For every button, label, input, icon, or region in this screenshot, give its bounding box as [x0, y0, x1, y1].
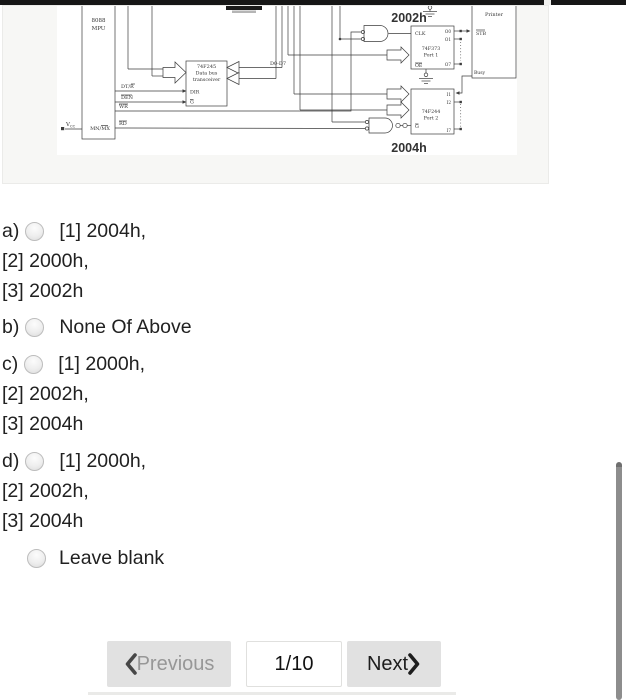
option-d-line-3: [3] 2004h — [2, 506, 83, 536]
dt-r-label: DT/R — [121, 84, 134, 90]
busy-line — [460, 76, 473, 93]
rd-line — [115, 128, 365, 129]
chevron-right-icon — [408, 653, 421, 675]
data-bus-label: D0-D7 — [270, 61, 286, 67]
o7-label: O7 — [445, 62, 451, 67]
option-c-line-2: [2] 2002h, — [2, 379, 89, 409]
option-label-c[interactable]: [1] 2000h, — [58, 349, 145, 379]
radio-leave-blank[interactable] — [27, 549, 46, 568]
page-indicator: 1/10 — [246, 641, 342, 687]
previous-button-label: Previous — [137, 653, 215, 676]
i7-label: I7 — [447, 128, 452, 133]
leave-blank-row: Leave blank — [2, 543, 164, 573]
option-key-a: a) — [2, 216, 19, 246]
circuit-figure: 8088 MPU MN/MX VCC DT/R DEN WR RD 74F245… — [57, 6, 517, 155]
option-c-line-3: [3] 2004h — [2, 409, 83, 439]
question-figure-panel: 8088 MPU MN/MX VCC DT/R DEN WR RD 74F245… — [2, 5, 549, 184]
bus-arrow-into-port2-b — [387, 102, 409, 118]
nand-gate-top — [364, 26, 388, 42]
rd-label: RD — [119, 121, 127, 127]
ground-symbol-oe — [419, 69, 433, 84]
port2-label-1: 74F244 — [422, 109, 441, 115]
busy-label: Busy — [474, 70, 486, 76]
bus-arrow-into-port1 — [387, 47, 409, 63]
mpu-label-2: MPU — [92, 26, 106, 32]
vcc-label: VCC — [65, 122, 76, 129]
den-label: DEN — [121, 95, 134, 101]
circuit-diagram: 8088 MPU MN/MX VCC DT/R DEN WR RD 74F245… — [57, 6, 517, 155]
next-button[interactable]: Next — [347, 641, 441, 687]
option-a-line-3: [3] 2002h — [2, 276, 83, 306]
port1-label-1: 74F373 — [422, 46, 441, 52]
radio-option-c[interactable] — [24, 355, 43, 374]
nav-shadow — [88, 692, 456, 695]
g-transceiver-label: G — [190, 100, 194, 106]
option-label-a[interactable]: [1] 2004h, — [59, 216, 146, 246]
option-label-b[interactable]: None Of Above — [59, 312, 191, 342]
nand-gate-bottom — [369, 118, 393, 133]
port2-label-2: Port 2 — [424, 116, 439, 122]
transceiver-label-2: Data bus — [196, 71, 218, 77]
oe-label: OE — [415, 63, 423, 69]
page-indicator-value: 1/10 — [275, 653, 314, 676]
o0-label: O0 — [445, 29, 451, 34]
mpu-label-1: 8088 — [92, 18, 106, 24]
radio-option-b[interactable] — [25, 318, 44, 337]
i2-label: I2 — [447, 100, 452, 105]
bus-arrow-into-transceiver — [163, 62, 186, 83]
previous-button[interactable]: Previous — [107, 641, 231, 687]
option-d-line-2: [2] 2002h, — [2, 476, 89, 506]
bus-arrow-out-top — [227, 62, 239, 74]
i1-label: I1 — [447, 92, 452, 97]
option-row-d: d) [1] 2000h, — [2, 446, 146, 476]
stb-label: STB — [476, 31, 486, 37]
transceiver-label-1: 74F245 — [197, 64, 216, 70]
mn-mx-label: MN/MX — [90, 126, 110, 132]
chevron-left-icon — [124, 653, 137, 675]
option-row-c: c) [1] 2000h, — [2, 349, 145, 379]
port1-address-label: 2002h — [391, 11, 426, 25]
option-key-b: b) — [2, 312, 19, 342]
port1-label-2: Port 1 — [424, 53, 439, 59]
option-a-line-2: [2] 2000h, — [2, 246, 89, 276]
radio-option-a[interactable] — [25, 222, 44, 241]
port2-address-label: 2004h — [391, 141, 426, 155]
clk-label: CLK — [415, 31, 426, 37]
option-label-d[interactable]: [1] 2000h, — [59, 446, 146, 476]
dir-label: DIR — [190, 90, 200, 96]
cropped-top-box-body — [232, 11, 256, 14]
bus-arrow-into-port2-a — [387, 86, 409, 102]
scrollbar-thumb[interactable] — [616, 462, 622, 700]
cropped-top-box — [226, 6, 262, 10]
o1-label: O1 — [445, 37, 451, 42]
transceiver-label-3: transceiver — [193, 77, 221, 83]
wr-label: WR — [119, 104, 128, 110]
option-row-b: b) None Of Above — [2, 312, 192, 342]
option-key-c: c) — [2, 349, 18, 379]
leave-blank-label[interactable]: Leave blank — [59, 543, 164, 573]
next-button-label: Next — [367, 653, 408, 676]
option-row-a: a) [1] 2004h, — [2, 216, 146, 246]
radio-option-d[interactable] — [25, 452, 44, 471]
bus-arrow-out-bottom — [227, 73, 239, 85]
printer-label: Printer — [485, 12, 504, 18]
g-port2-label: G — [415, 124, 419, 130]
option-key-d: d) — [2, 446, 19, 476]
